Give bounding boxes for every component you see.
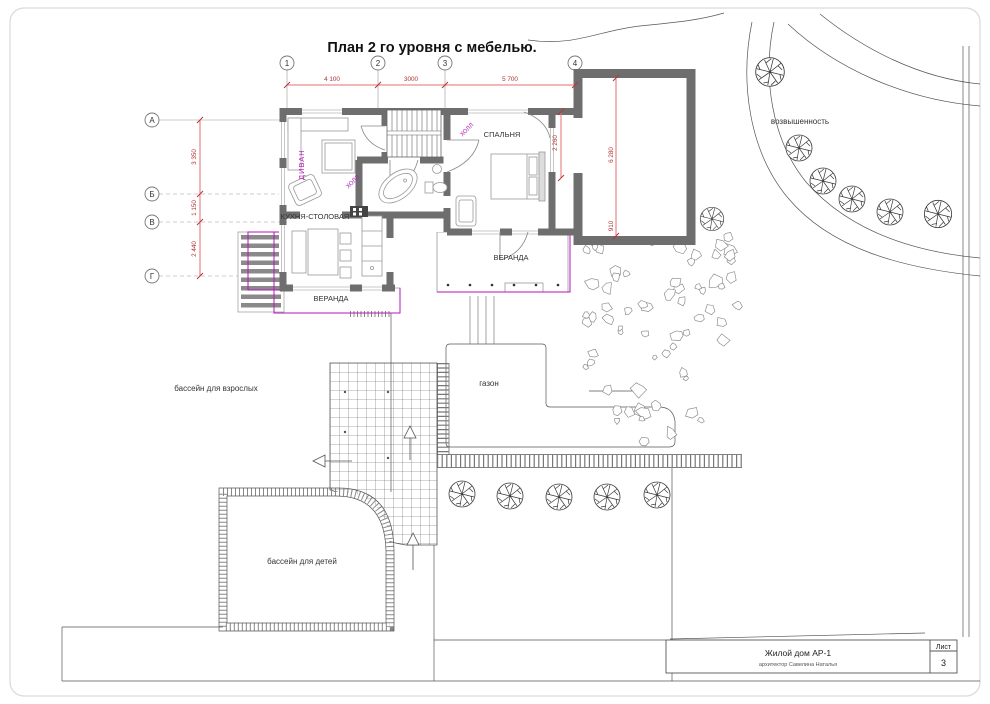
axis-row-a: А bbox=[149, 116, 155, 125]
sink bbox=[433, 165, 442, 174]
dim-garage-2: 910 bbox=[608, 220, 615, 231]
bench bbox=[292, 231, 306, 273]
dim-row-b-v: 1 150 bbox=[191, 200, 198, 216]
axis-row-g: Г bbox=[150, 272, 155, 281]
tile-path-horizontal bbox=[437, 455, 742, 468]
external-stair bbox=[238, 232, 284, 312]
room-label-veranda-left: ВЕРАНДА bbox=[313, 294, 348, 303]
axis-col-3: 3 bbox=[443, 59, 448, 68]
axis-col-2: 2 bbox=[376, 59, 381, 68]
boundary-line bbox=[963, 46, 969, 637]
room-label-bedroom: СПАЛЬНЯ bbox=[484, 130, 521, 139]
dim-col-3-4: 5 700 bbox=[502, 76, 518, 83]
sheet-label: Лист bbox=[936, 644, 952, 651]
room-label-kitchen: КУХНЯ-СТОЛОВАЯ bbox=[281, 212, 350, 221]
label-lawn: газон bbox=[479, 379, 499, 388]
axis-row-b: Б bbox=[149, 190, 154, 199]
dim-col-2-3: 3000 bbox=[404, 76, 419, 83]
dim-row-v-g: 2 440 bbox=[191, 241, 198, 257]
label-adult-pool: бассейн для взрослых bbox=[174, 384, 257, 393]
label-hill: возвышенность bbox=[771, 117, 829, 126]
axis-col-4: 4 bbox=[573, 59, 578, 68]
room-label-veranda-main: ВЕРАНДА bbox=[493, 253, 528, 262]
axis-row-v: В bbox=[149, 218, 154, 227]
tile-path-vertical bbox=[438, 363, 450, 455]
staircase bbox=[387, 110, 441, 157]
garage-opening bbox=[572, 118, 585, 173]
dim-garage: 6 280 bbox=[608, 147, 615, 163]
dim-row-a-b: 3 350 bbox=[191, 149, 198, 165]
project-name: Жилой дом АР-1 bbox=[765, 648, 832, 658]
connector-steps bbox=[470, 296, 494, 344]
dim-col-1-2: 4 100 bbox=[324, 76, 340, 83]
title-block: Жилой дом АР-1 архитектор Савелина Натал… bbox=[666, 633, 957, 673]
label-kids-pool: бассейн для детей bbox=[267, 557, 337, 566]
garage-walls bbox=[578, 74, 691, 241]
drawing-title: План 2 го уровня с мебелью. bbox=[327, 40, 536, 56]
dim-bedroom: 2 260 bbox=[552, 135, 559, 151]
drawing-sheet: 1 2 3 4 А Б В Г bbox=[0, 0, 990, 704]
floor-plan-canvas: 1 2 3 4 А Б В Г bbox=[0, 0, 990, 704]
architect-name: архитектор Савелина Наталья bbox=[759, 662, 837, 668]
rock-scatter bbox=[582, 229, 742, 446]
sheet-number: 3 bbox=[941, 658, 946, 668]
axis-col-1: 1 bbox=[285, 59, 290, 68]
room-label-divan: ДИВАН bbox=[297, 149, 306, 180]
toilet bbox=[425, 182, 433, 193]
dining-table bbox=[308, 229, 338, 275]
